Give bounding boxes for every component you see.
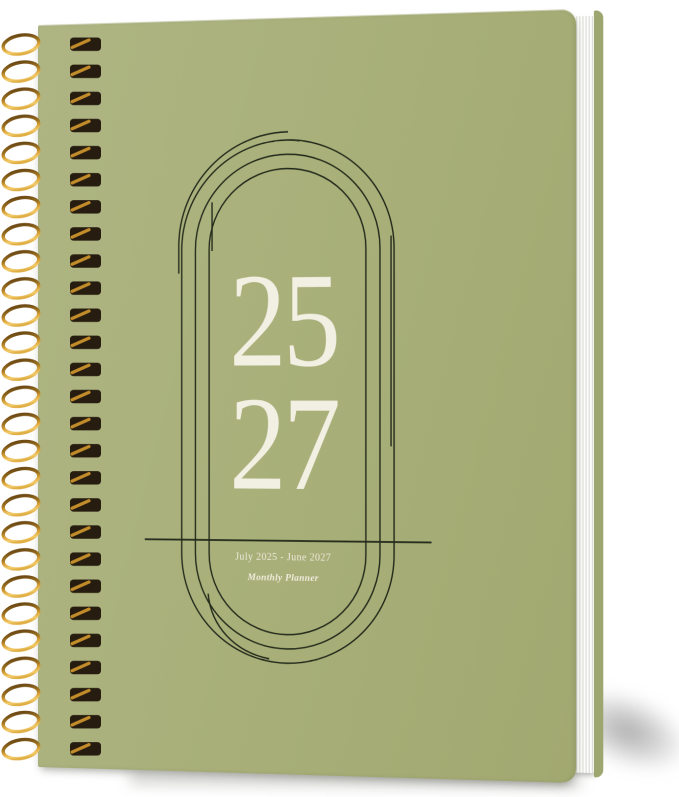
back-cover-edge — [594, 10, 603, 777]
planner-notebook: 25 27 July 2025 - June 2027 Monthly Plan… — [38, 8, 603, 784]
spiral-binding — [0, 31, 106, 763]
front-cover: 25 27 July 2025 - June 2027 Monthly Plan… — [38, 9, 576, 783]
divider-line — [145, 539, 432, 542]
partial-arc-bottom-left — [208, 594, 269, 659]
spiral-fill — [0, 31, 106, 763]
year-bottom-text: 27 — [173, 376, 395, 512]
product-photo: 25 27 July 2025 - June 2027 Monthly Plan… — [0, 0, 679, 797]
